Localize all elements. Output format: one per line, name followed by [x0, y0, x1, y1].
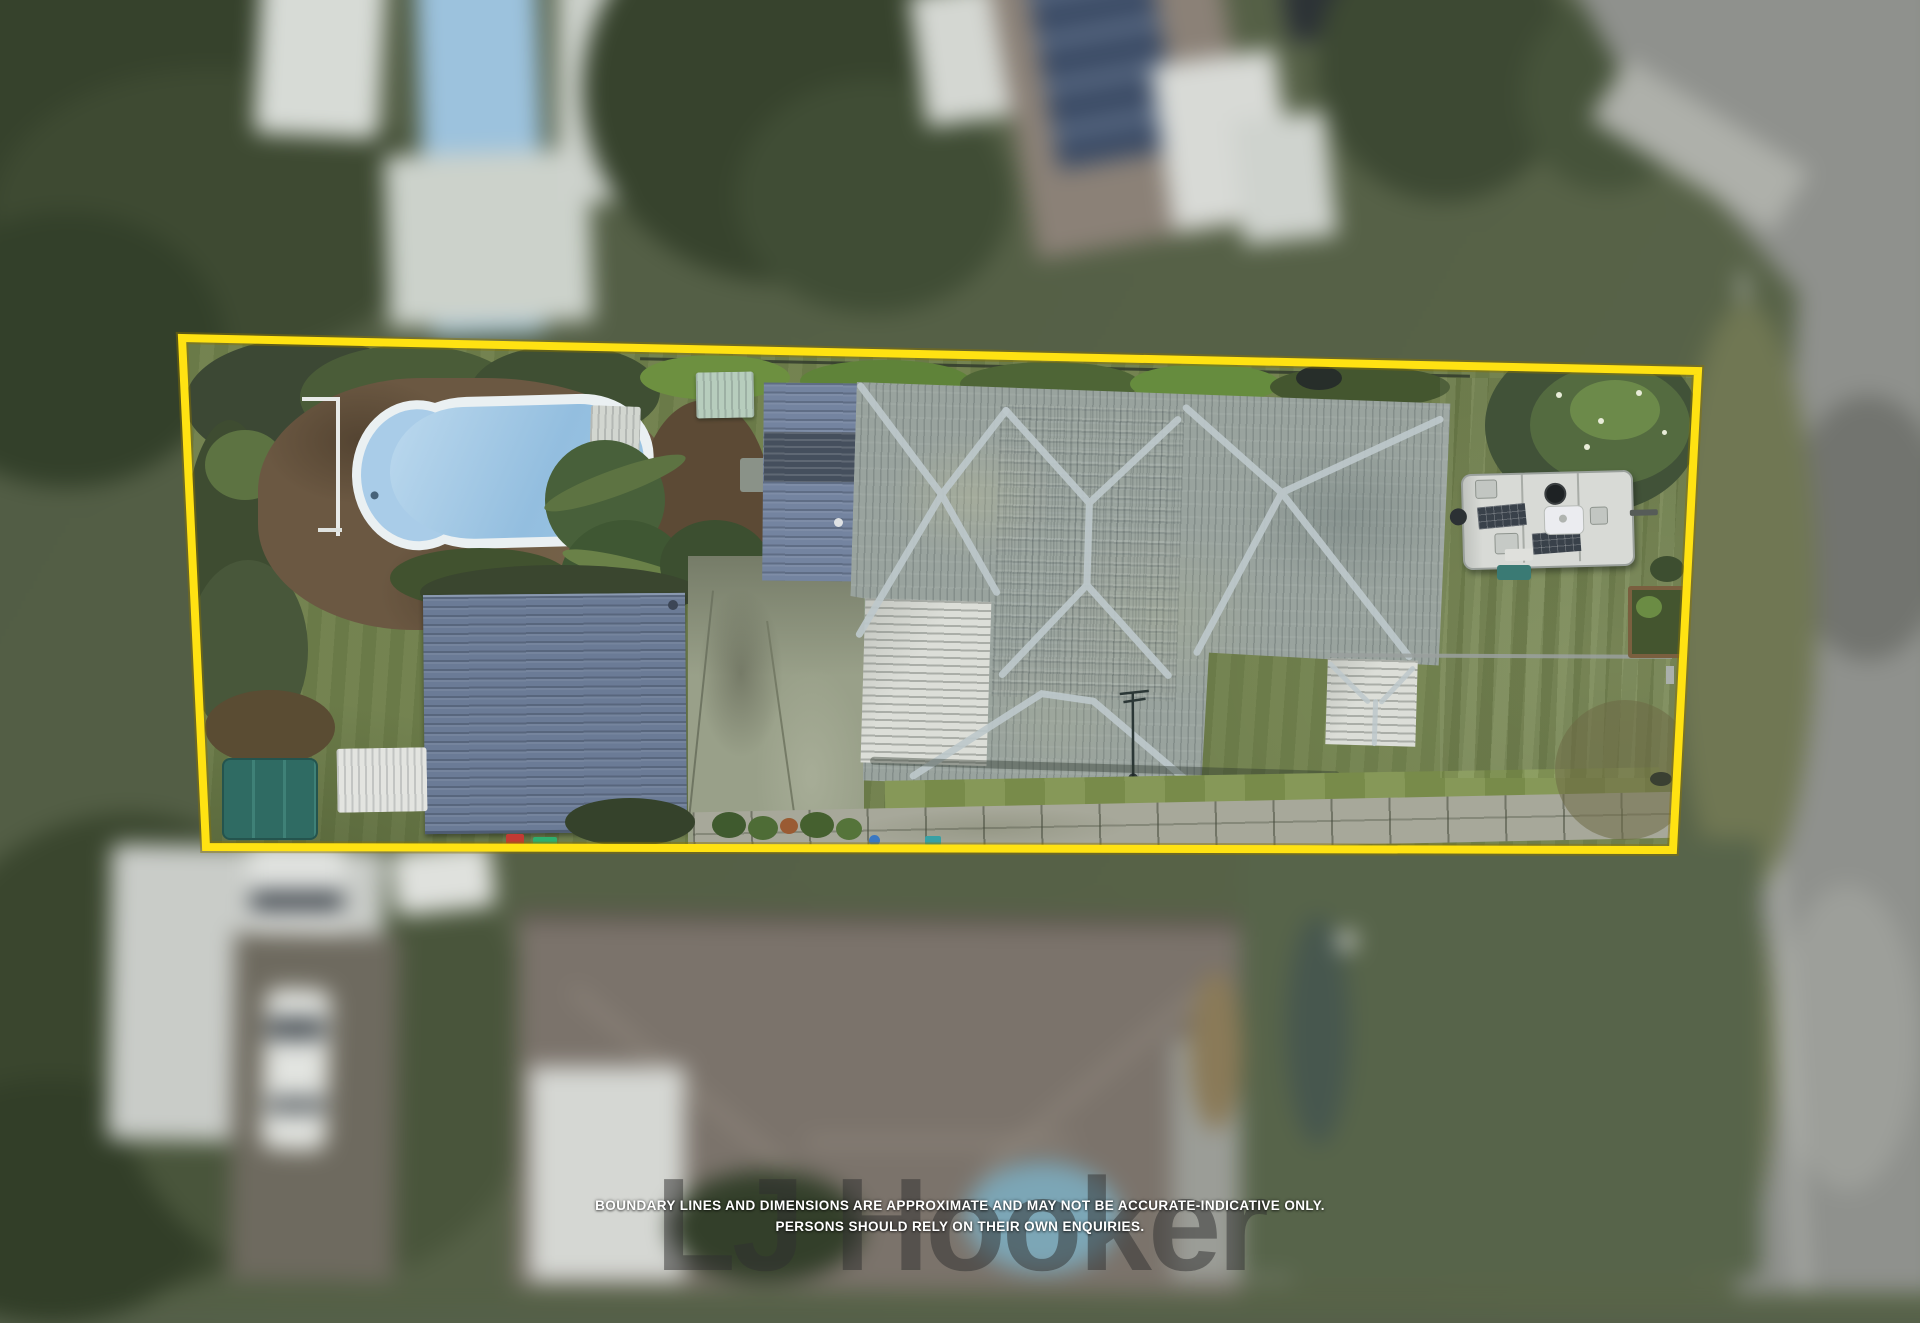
driveway	[688, 556, 864, 850]
terracotta-pot	[780, 818, 798, 834]
toy-green	[533, 837, 557, 848]
potted-plant	[712, 812, 746, 838]
caravan-hatch	[1475, 479, 1497, 499]
disclaimer-text: BOUNDARY LINES AND DIMENSIONS ARE APPROX…	[0, 1198, 1920, 1234]
gray-post	[1666, 666, 1674, 684]
teal-tub	[1497, 565, 1531, 580]
trampoline	[222, 758, 318, 840]
garden-debris	[1650, 772, 1672, 786]
white-flowers	[1556, 392, 1562, 398]
dirt-patch	[205, 690, 335, 765]
white-flowers	[1662, 430, 1667, 435]
toy-teal	[925, 836, 941, 845]
tree-highlight	[1570, 380, 1660, 440]
house-roof-ridges	[843, 376, 1455, 814]
caravan-solar-panel	[1477, 503, 1527, 529]
white-flowers	[1598, 418, 1604, 424]
white-flowers	[1636, 390, 1642, 396]
street-stain	[1776, 885, 1919, 1191]
neighbor-shed	[254, 0, 388, 139]
garden-bed	[1286, 915, 1349, 1144]
shed-roof-vent	[668, 600, 678, 610]
carport-vent	[834, 518, 843, 527]
raised-garden-bed	[1628, 586, 1686, 658]
white-car	[390, 841, 496, 916]
potted-plant	[748, 816, 778, 840]
toy-red	[506, 834, 524, 845]
caravan-hatch	[1590, 506, 1608, 524]
neighbor-structure	[1231, 111, 1337, 245]
pool-fence-rail	[318, 528, 342, 532]
worn-grass-patch	[1555, 700, 1695, 840]
aerial-property-photo: { "meta": { "type": "aerial-drone-photog…	[0, 0, 1920, 1280]
sedan-windshield	[267, 1017, 324, 1039]
garden-path	[1190, 971, 1243, 1129]
garden-item-white	[1337, 932, 1355, 950]
main-house	[843, 376, 1455, 814]
shrub	[1650, 556, 1684, 582]
pool-fence-rail	[302, 397, 340, 401]
white-flowers	[1584, 444, 1590, 450]
pool-fence-post	[336, 398, 340, 536]
caravan	[1451, 465, 1649, 574]
green-garden-shed	[696, 371, 755, 418]
disclaimer-line-1: BOUNDARY LINES AND DIMENSIONS ARE APPROX…	[0, 1198, 1920, 1213]
white-canopy	[336, 747, 427, 813]
carport-shade-section	[764, 432, 862, 483]
garden-plant	[1636, 596, 1662, 618]
sedan-rear-window	[267, 1097, 324, 1113]
white-sedan	[261, 988, 332, 1151]
van-windshield	[250, 891, 344, 911]
garden-shrubs	[565, 798, 695, 846]
potted-plant	[836, 818, 862, 840]
caravan-box	[1505, 548, 1533, 561]
dark-garden-object	[1296, 366, 1342, 390]
caravan-hitch	[1630, 509, 1658, 516]
disclaimer-line-2: PERSONS SHOULD RELY ON THEIR OWN ENQUIRI…	[0, 1219, 1920, 1234]
potted-plant	[800, 812, 834, 838]
toy-blue-ball	[869, 835, 880, 846]
white-van	[248, 840, 346, 936]
neighbor-roof-ridge	[807, 1140, 1072, 1145]
